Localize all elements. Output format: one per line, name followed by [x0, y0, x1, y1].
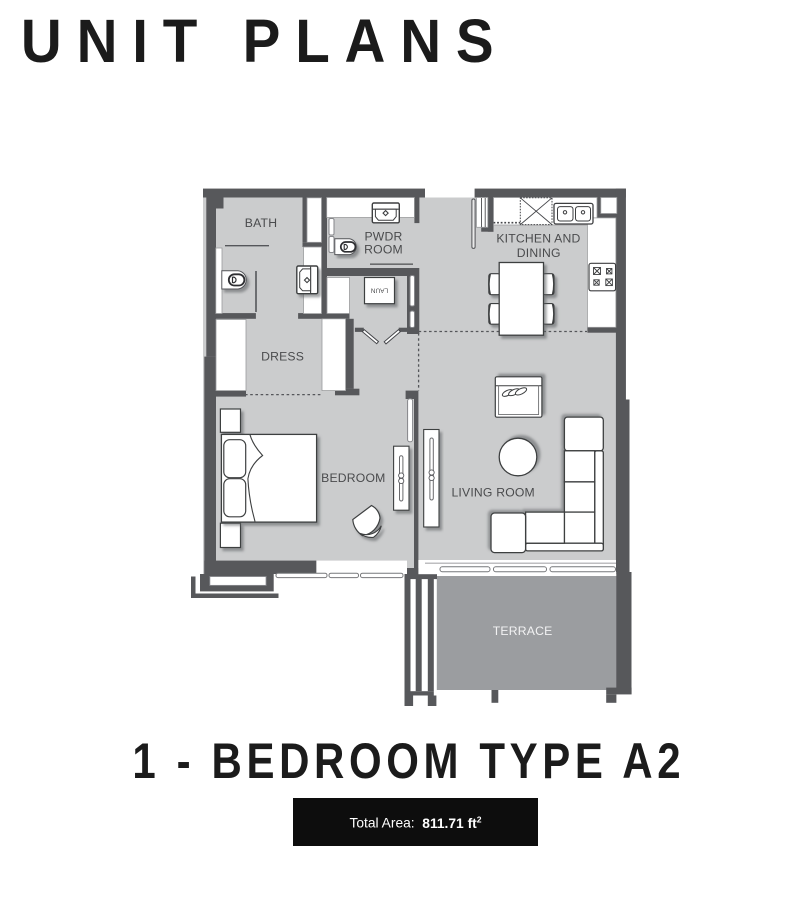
svg-text:UNIT PLANS: UNIT PLANS	[21, 7, 509, 76]
svg-text:LIVING ROOM: LIVING ROOM	[451, 486, 534, 500]
svg-text:BEDROOM: BEDROOM	[321, 471, 385, 485]
svg-text:KITCHEN AND: KITCHEN AND	[496, 231, 580, 245]
svg-text:1 - BEDROOM TYPE A2: 1 - BEDROOM TYPE A2	[132, 733, 685, 789]
svg-text:DRESS: DRESS	[261, 350, 304, 364]
svg-text:BATH: BATH	[245, 216, 277, 230]
svg-text:LAUN: LAUN	[371, 286, 389, 293]
svg-text:PWDR: PWDR	[364, 230, 402, 244]
svg-text:TERRACE: TERRACE	[493, 624, 553, 638]
svg-text:DINING: DINING	[517, 246, 561, 260]
svg-text:ROOM: ROOM	[364, 243, 403, 257]
